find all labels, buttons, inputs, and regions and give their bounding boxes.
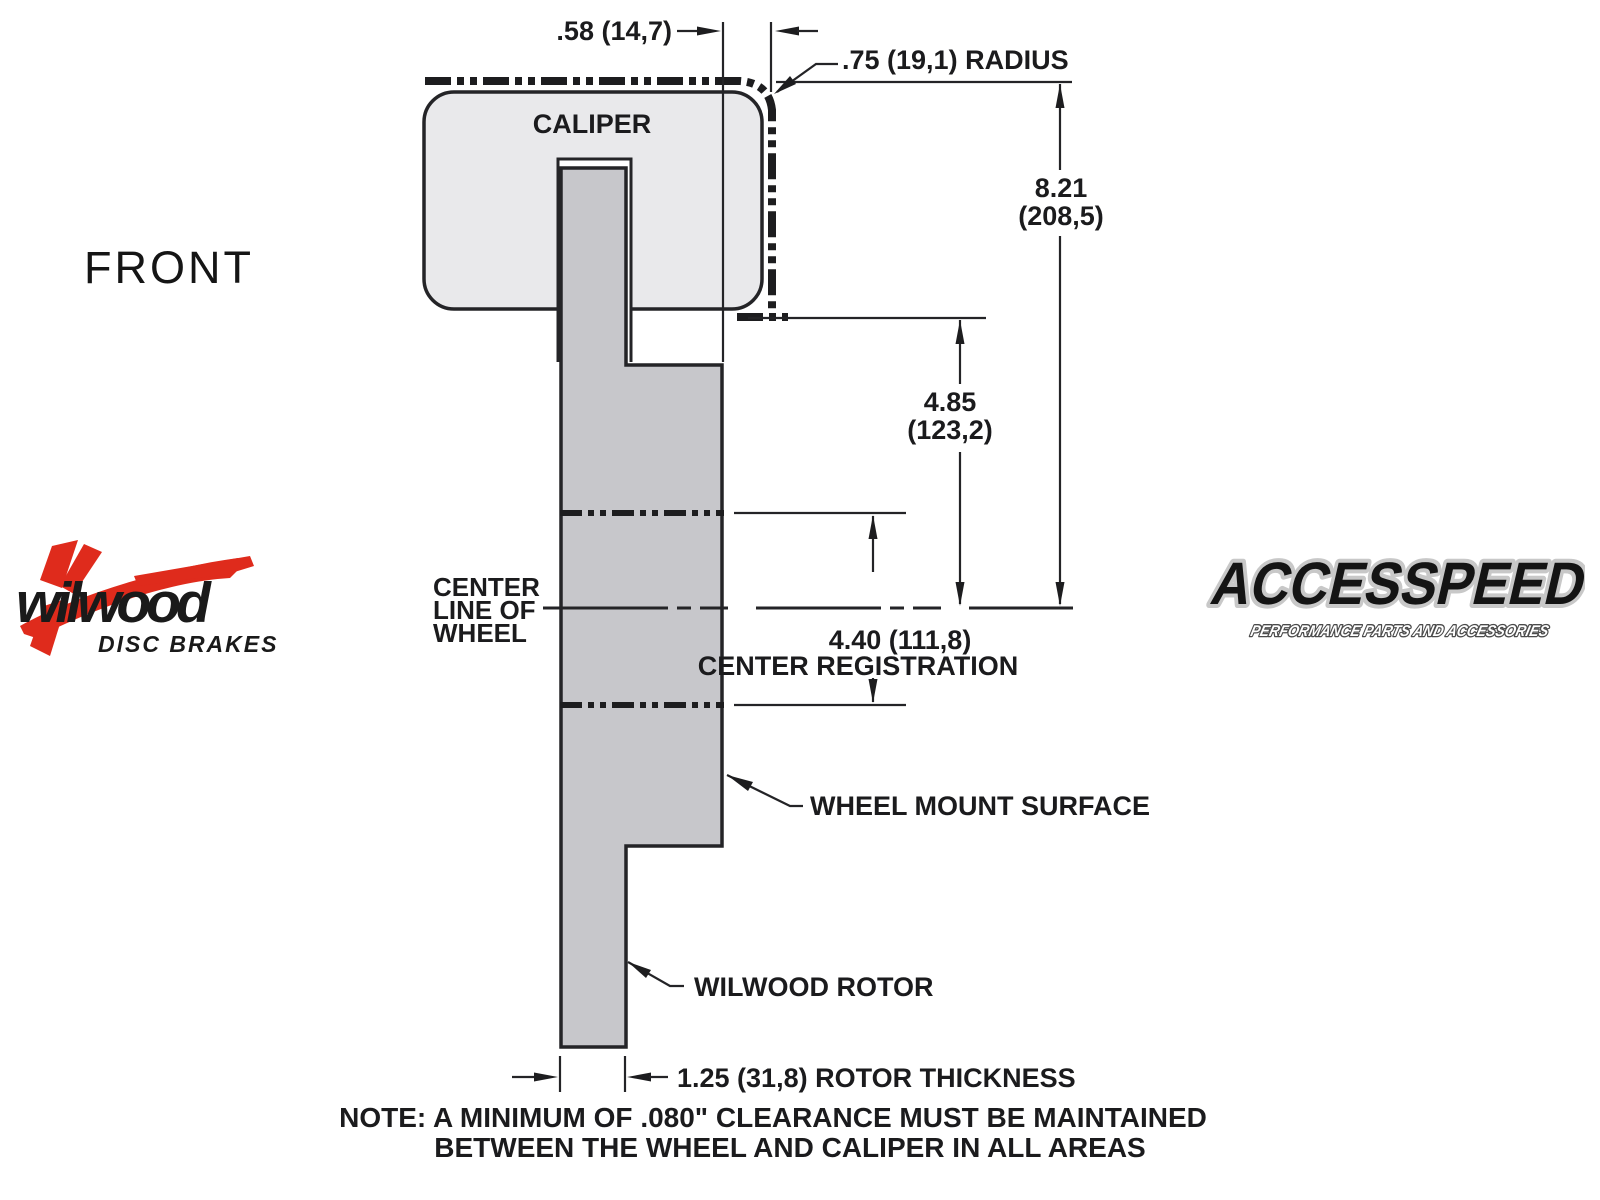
arrowhead-up xyxy=(956,320,965,344)
accesspeed-tagline: PERFORMANCE PARTS AND ACCESSORIES xyxy=(1249,623,1551,641)
dim-mount-depth-in: 4.85 xyxy=(924,387,977,417)
note-line-1: NOTE: A MINIMUM OF .080" CLEARANCE MUST … xyxy=(339,1102,1207,1133)
dim-overall-in: 8.21 xyxy=(1035,173,1088,203)
arrowhead-radius xyxy=(774,76,796,94)
arrowhead-down xyxy=(956,582,965,606)
arrowhead-wheel-mount xyxy=(727,775,753,791)
arrowhead-up xyxy=(869,515,878,539)
arrowhead-right xyxy=(534,1073,558,1082)
wilwood-disc-brakes-label: DISC BRAKES xyxy=(98,631,278,658)
accesspeed-wordmark: ACCESSPEED xyxy=(1205,551,1585,617)
note-line-2: BETWEEN THE WHEEL AND CALIPER IN ALL ARE… xyxy=(434,1132,1145,1163)
dim-overall-mm: (208,5) xyxy=(1018,201,1104,231)
label-center-registration: CENTER REGISTRATION xyxy=(698,651,1019,681)
label-wheel-mount-surface: WHEEL MOUNT SURFACE xyxy=(810,791,1150,821)
arrowhead-rotor xyxy=(628,962,651,978)
accesspeed-logo: ACCESSPEED PERFORMANCE PARTS AND ACCESSO… xyxy=(1200,532,1585,647)
dim-mount-depth-mm: (123,2) xyxy=(907,415,993,445)
caliper-label: CALIPER xyxy=(533,109,652,139)
dim-rotor-thickness: 1.25 (31,8) ROTOR THICKNESS xyxy=(677,1063,1076,1093)
arrowhead-left xyxy=(775,27,799,36)
dim-radius: .75 (19,1) RADIUS xyxy=(842,45,1069,75)
arrowhead-right xyxy=(697,27,721,36)
arrowhead-down xyxy=(869,679,878,703)
accesspeed-wordmark-svg: ACCESSPEED PERFORMANCE PARTS AND ACCESSO… xyxy=(1200,532,1585,647)
dim-wheel-clearance: .58 (14,7) xyxy=(556,16,672,46)
wilwood-logo: wilwood DISC BRAKES xyxy=(14,534,324,664)
label-wilwood-rotor: WILWOOD ROTOR xyxy=(694,972,933,1002)
wilwood-wordmark: wilwood xyxy=(16,570,206,636)
arrowhead-down xyxy=(1056,582,1065,606)
arrowhead-left xyxy=(627,1073,651,1082)
arrowhead-up xyxy=(1056,84,1065,108)
centerline-label-3: WHEEL xyxy=(433,618,527,648)
